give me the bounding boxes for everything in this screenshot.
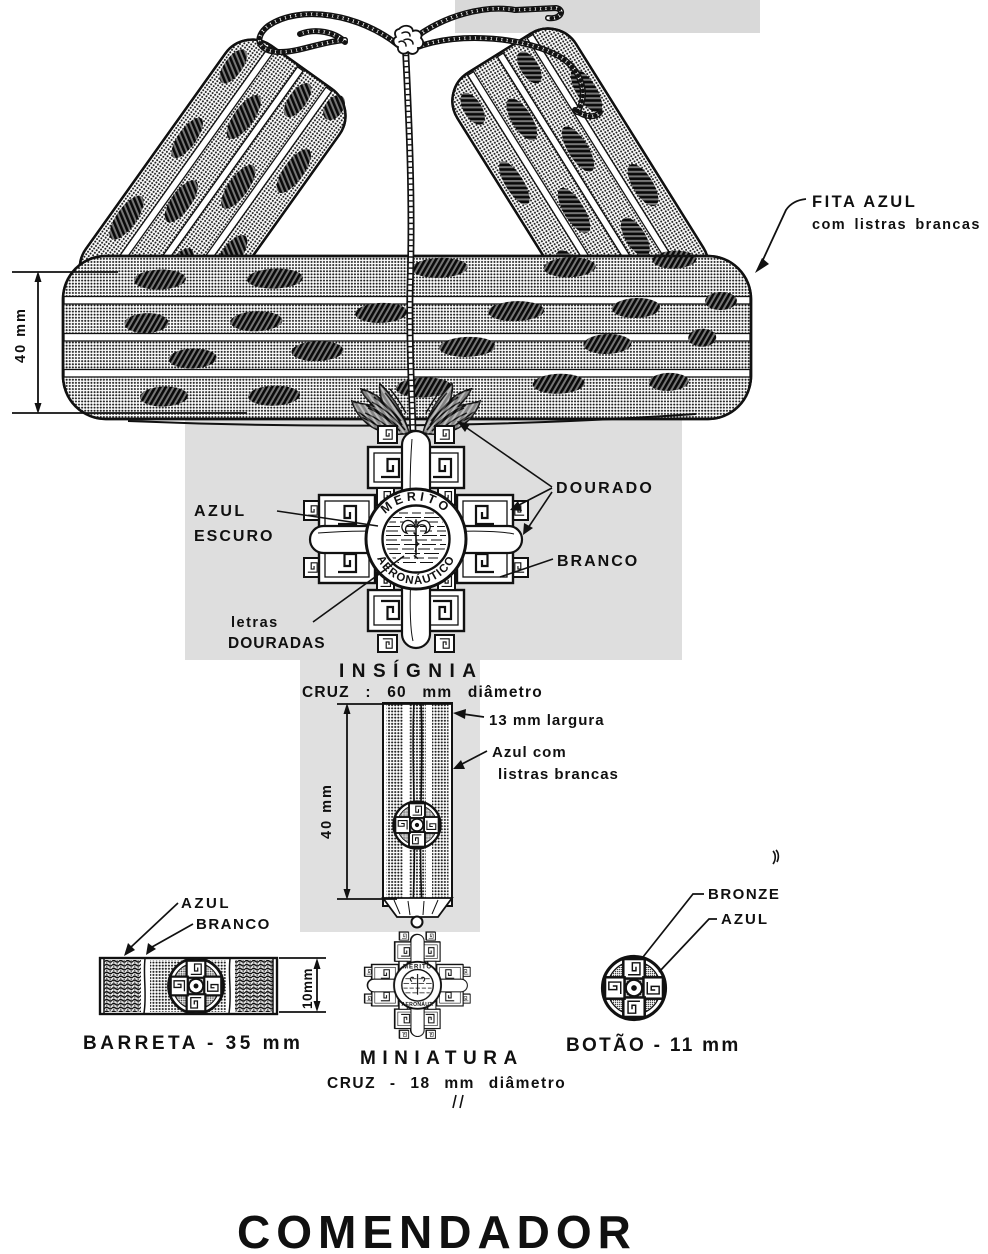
svg-text:ESCURO: ESCURO [194,528,274,545]
svg-text:BRONZE: BRONZE [708,886,780,903]
svg-text:BOTÃO - 11 mm: BOTÃO - 11 mm [566,1034,741,1056]
svg-text:AZUL: AZUL [194,503,247,520]
svg-text:40 mm: 40 mm [13,307,29,363]
svg-text:com listras brancas: com listras brancas [812,217,981,233]
svg-text:CRUZ - 18 mm diâmetro: CRUZ - 18 mm diâmetro [327,1075,566,1092]
svg-text:BRANCO: BRANCO [557,553,639,570]
svg-text:FITA AZUL: FITA AZUL [812,193,917,211]
svg-text:13 mm largura: 13 mm largura [489,712,605,729]
svg-text:AZUL: AZUL [181,895,231,912]
svg-text:10mm: 10mm [300,968,315,1009]
svg-text:INSÍGNIA: INSÍGNIA [339,660,483,682]
svg-text:40 mm: 40 mm [319,783,335,839]
svg-text:Azul com: Azul com [492,744,567,761]
svg-text:letras: letras [231,615,279,631]
svg-text:AZUL: AZUL [721,911,769,928]
svg-text:MINIATURA: MINIATURA [360,1048,524,1069]
svg-text:CRUZ : 60 mm diâmetro: CRUZ : 60 mm diâmetro [302,684,543,701]
svg-text:BARRETA - 35 mm: BARRETA - 35 mm [83,1033,303,1054]
svg-text:DOURADO: DOURADO [556,480,654,497]
svg-text:BRANCO: BRANCO [196,916,271,933]
svg-text:listras brancas: listras brancas [498,766,619,783]
svg-text:COMENDADOR: COMENDADOR [237,1206,637,1254]
svg-text:DOURADAS: DOURADAS [228,635,326,652]
